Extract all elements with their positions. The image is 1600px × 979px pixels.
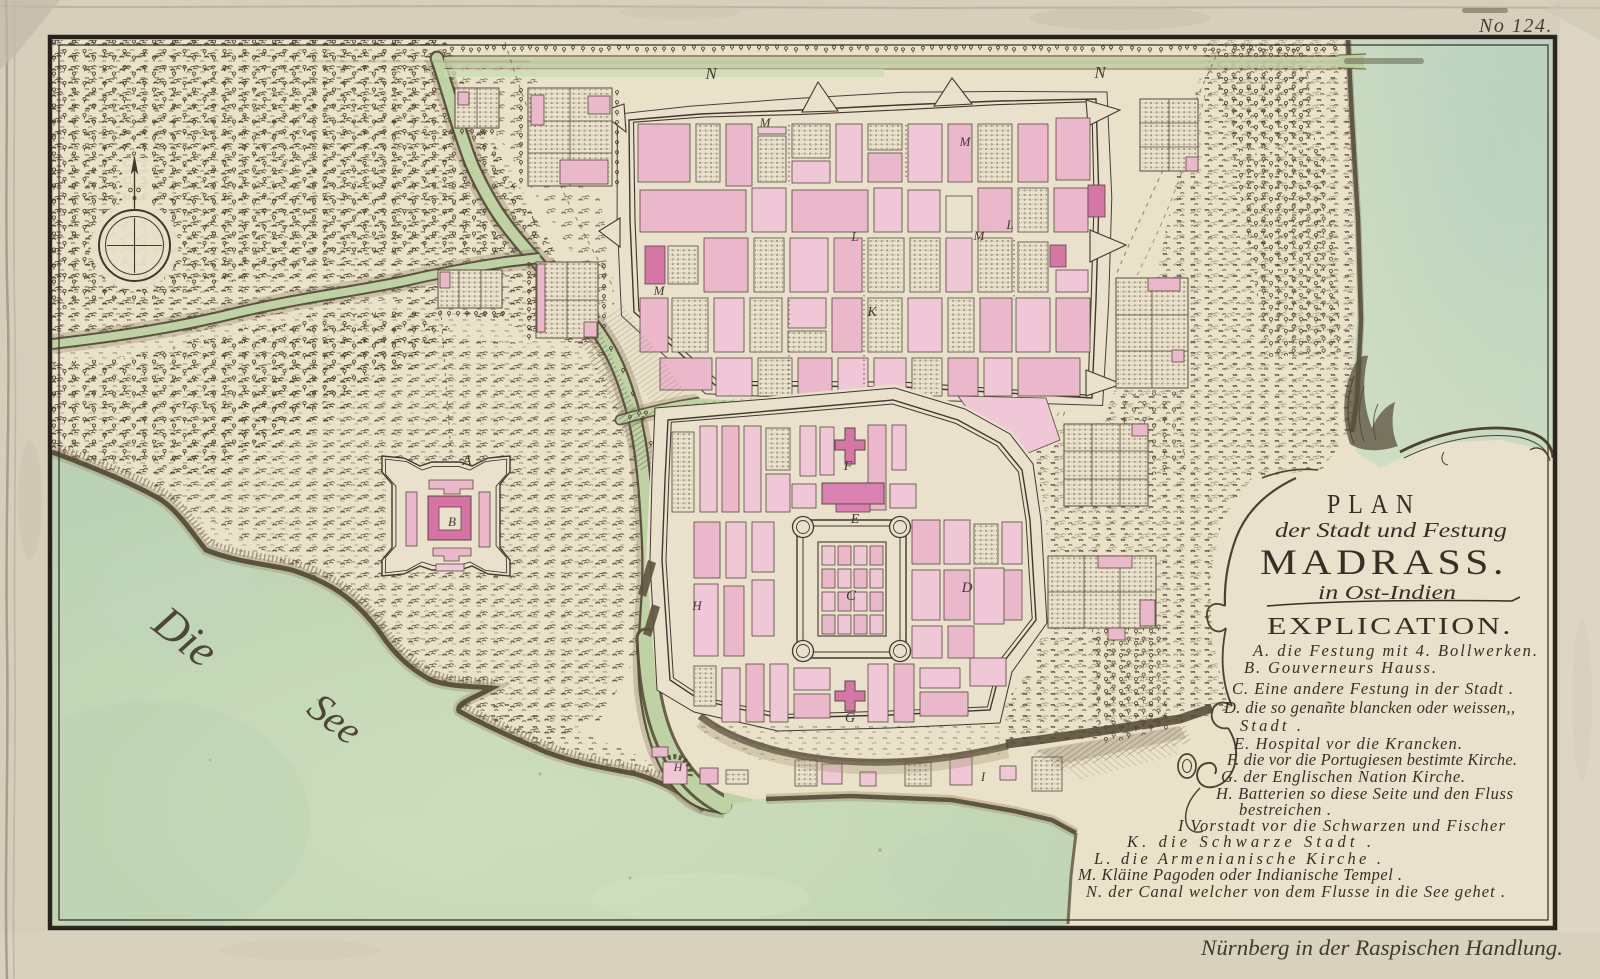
svg-text:No 124.: No 124. [1478,15,1553,37]
svg-text:Nürnberg in der Raspischen Han: Nürnberg in der Raspischen Handlung. [1200,935,1563,960]
